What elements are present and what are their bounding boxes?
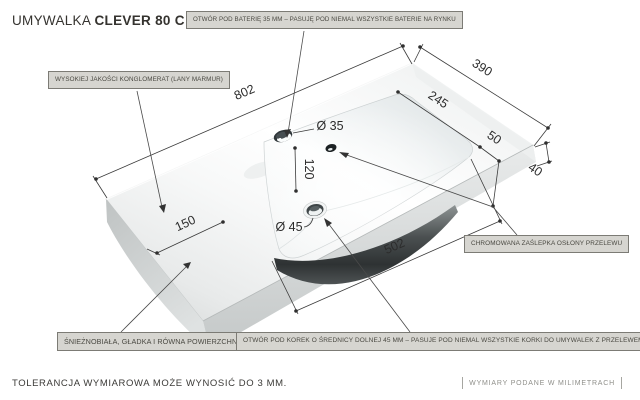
dim-label-120: 120	[302, 159, 316, 180]
dim-label-drain-diameter: Ø 45	[275, 220, 302, 234]
product-model: CLEVER 80 C	[94, 13, 184, 28]
callout-material: WYSOKIEJ JAKOŚCI KONGLOMERAT (LANY MARMU…	[48, 71, 230, 89]
callout-drain-hole: OTWÓR POD KOREK O ŚREDNICY DOLNEJ 45 MM …	[236, 332, 640, 351]
product-type: UMYWALKA	[12, 13, 90, 28]
units-note-left-bar	[462, 377, 463, 389]
tolerance-note: TOLERANCJA WYMIAROWA MOŻE WYNOSIĆ DO 3 M…	[12, 378, 287, 389]
dim-label-802: 802	[232, 82, 257, 103]
callout-overflow-cap: CHROMOWANA ZAŚLEPKA OSŁONY PRZELEWU	[464, 235, 629, 253]
units-note-text: WYMIARY PODANE W MILIMETRACH	[469, 380, 615, 387]
page-title: UMYWALKA CLEVER 80 C	[12, 13, 185, 28]
dim-label-faucet-diameter: Ø 35	[316, 119, 343, 133]
dim-line-40	[546, 143, 549, 162]
washbasin-spec-diagram: { "title": { "product_type": "UMYWALKA",…	[0, 0, 640, 400]
callout-faucet-hole: OTWÓR POD BATERIĘ 35 MM – PASUJĘ POD NIE…	[186, 11, 463, 29]
units-note-right-bar	[621, 377, 622, 389]
callout-surface: ŚNIEŻNOBIAŁA, GŁADKA I RÓWNA POWIERZCHNI…	[57, 332, 251, 351]
units-note: WYMIARY PODANE W MILIMETRACH	[456, 377, 628, 389]
dim-label-390: 390	[470, 56, 495, 79]
